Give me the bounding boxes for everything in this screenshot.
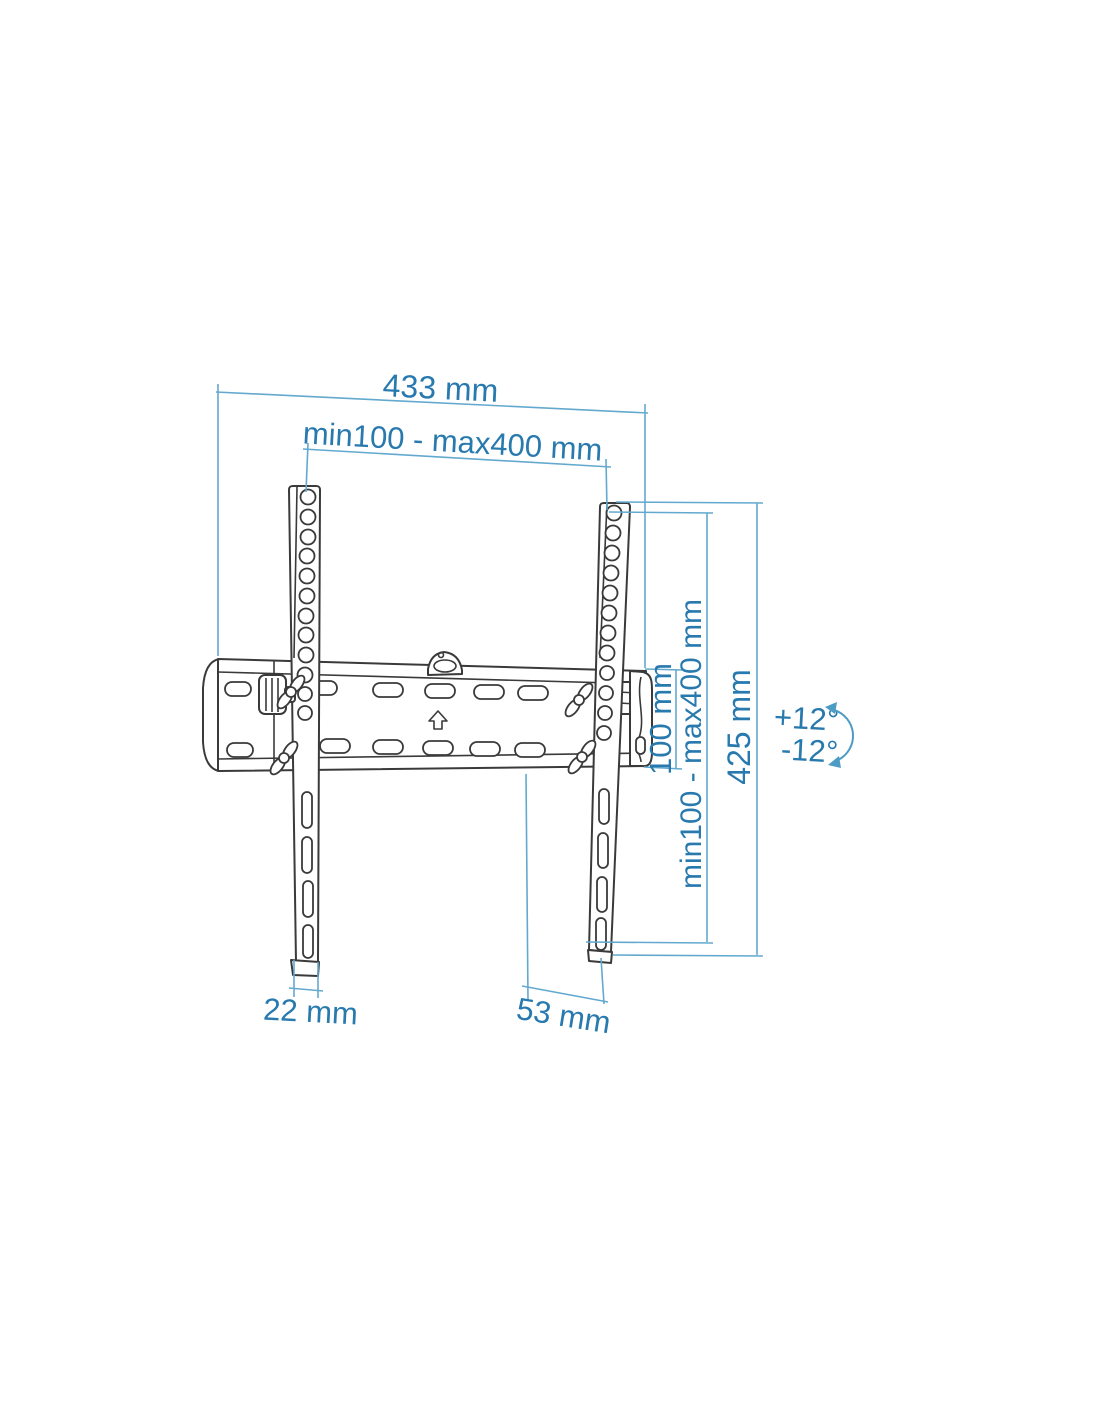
arm-hole (301, 530, 316, 545)
keyhole-tab-icon (428, 652, 462, 675)
arm-hole (605, 546, 620, 561)
plate-slot (425, 684, 455, 698)
arm-hole (299, 628, 314, 643)
wall-plate-left-cap (203, 659, 219, 771)
arm-hole (600, 666, 614, 680)
plate-slot (515, 743, 545, 757)
arm-slot (303, 925, 313, 958)
plate-slot (470, 742, 500, 756)
arm-hole (602, 606, 617, 621)
arm-hole (601, 626, 616, 641)
tv-mount-diagram: 433 mm min100 - max400 mm 100 mm min100 … (0, 0, 1100, 1422)
dim-total-width-label: 433 mm (382, 367, 499, 409)
plate-slot (518, 686, 548, 700)
plate-slot (225, 682, 251, 696)
arm-hole (606, 526, 621, 541)
arm-hole (301, 510, 316, 525)
arm-slot (596, 918, 606, 950)
arm-hole (300, 589, 315, 604)
arm-hole (300, 549, 315, 564)
arm-hole (300, 569, 315, 584)
plate-slot (373, 740, 403, 754)
dim-arm-width-label: 22 mm (262, 992, 358, 1032)
dim-vesa-height-label: min100 - max400 mm (675, 599, 708, 889)
arm-hole (599, 686, 613, 700)
arm-hole (299, 609, 314, 624)
arm-hole (301, 490, 316, 505)
arm-hole (597, 726, 611, 740)
arm-hole (603, 586, 618, 601)
right-arm-foot (588, 950, 612, 963)
arm-slot (302, 837, 312, 873)
plate-slot (474, 685, 504, 699)
dim-vesa-width-label: min100 - max400 mm (302, 415, 603, 467)
dim-total-height-label: 425 mm (721, 669, 757, 785)
tilt-annotation: +12° -12° (773, 699, 853, 769)
dim-total-width: 433 mm (216, 367, 648, 668)
arm-slot (599, 789, 609, 824)
left-arm-foot (291, 960, 319, 976)
left-arm (289, 486, 320, 976)
arm-slot (303, 881, 313, 917)
arm-hole (598, 706, 612, 720)
plate-slot (320, 739, 350, 753)
arm-hole (298, 706, 312, 720)
arm-slot (597, 877, 607, 912)
dim-vesa-width: min100 - max400 mm (302, 415, 611, 510)
arm-hole (600, 646, 615, 661)
dim-depth-label: 53 mm (514, 991, 613, 1040)
plate-slot (423, 741, 453, 755)
arm-slot (598, 833, 608, 868)
arm-hole (607, 506, 622, 521)
diagram-page: 433 mm min100 - max400 mm 100 mm min100 … (0, 0, 1100, 1422)
plate-slot (373, 683, 403, 697)
plate-slot (227, 743, 253, 757)
dim-plate-height-label: 100 mm (643, 663, 678, 775)
arm-hole (299, 648, 314, 663)
arm-hole (604, 566, 619, 581)
arm-slot (302, 792, 312, 828)
